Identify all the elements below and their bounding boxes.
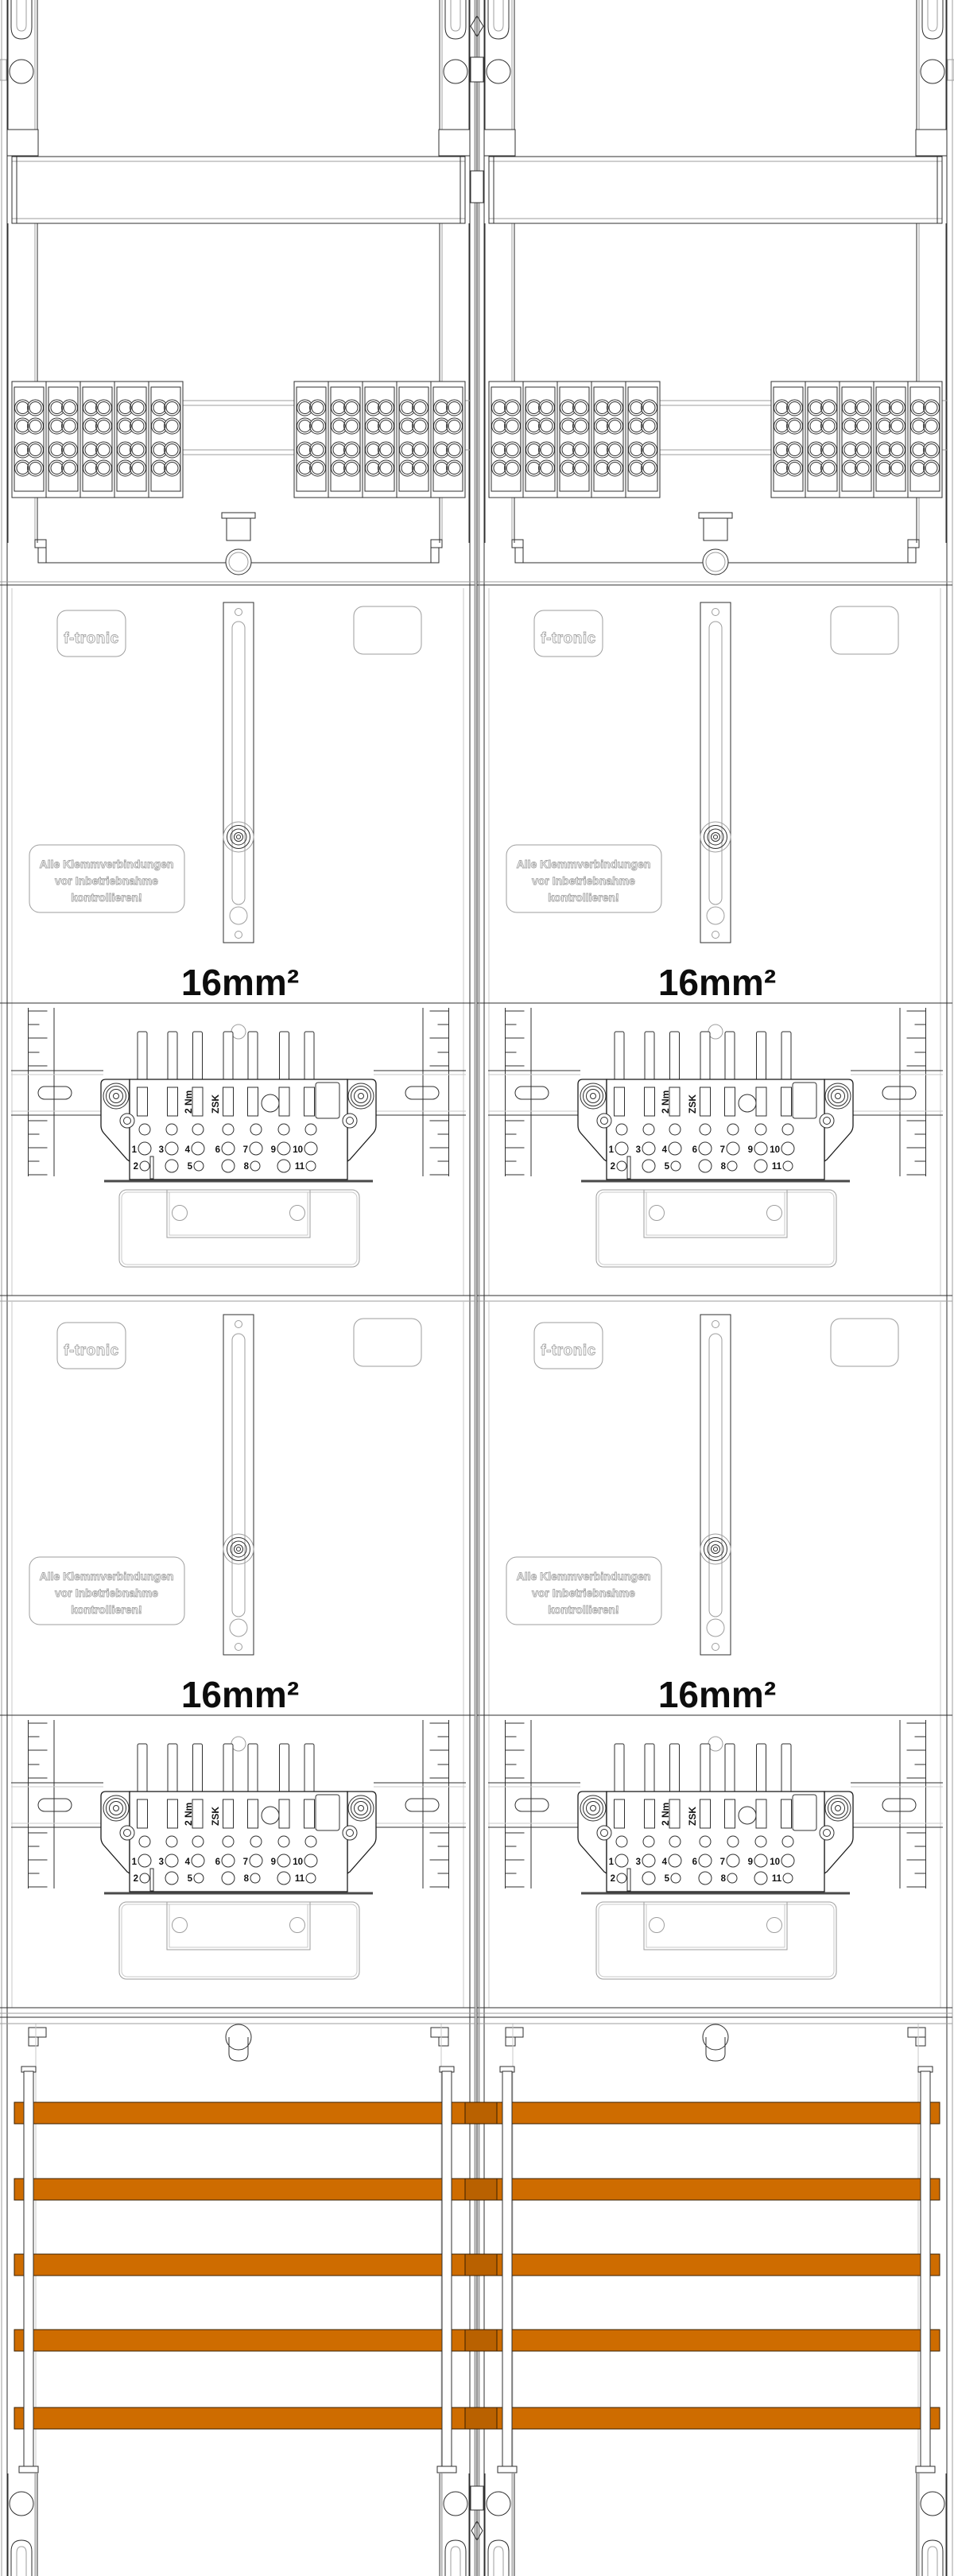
seam-connector-top — [471, 57, 483, 82]
drawing-canvas: f-tronic Alle Klemmverbindungen vor Inbe… — [0, 0, 954, 2576]
busbar-joint — [465, 2254, 497, 2276]
seam-connector-bottom — [471, 2486, 483, 2510]
meter-board-drawing: f-tronic Alle Klemmverbindungen vor Inbe… — [0, 0, 954, 2576]
busbar-joint — [465, 2407, 497, 2429]
busbar-joint — [465, 2102, 497, 2124]
busbar-joint — [465, 2179, 497, 2200]
busbar-joint — [465, 2330, 497, 2351]
